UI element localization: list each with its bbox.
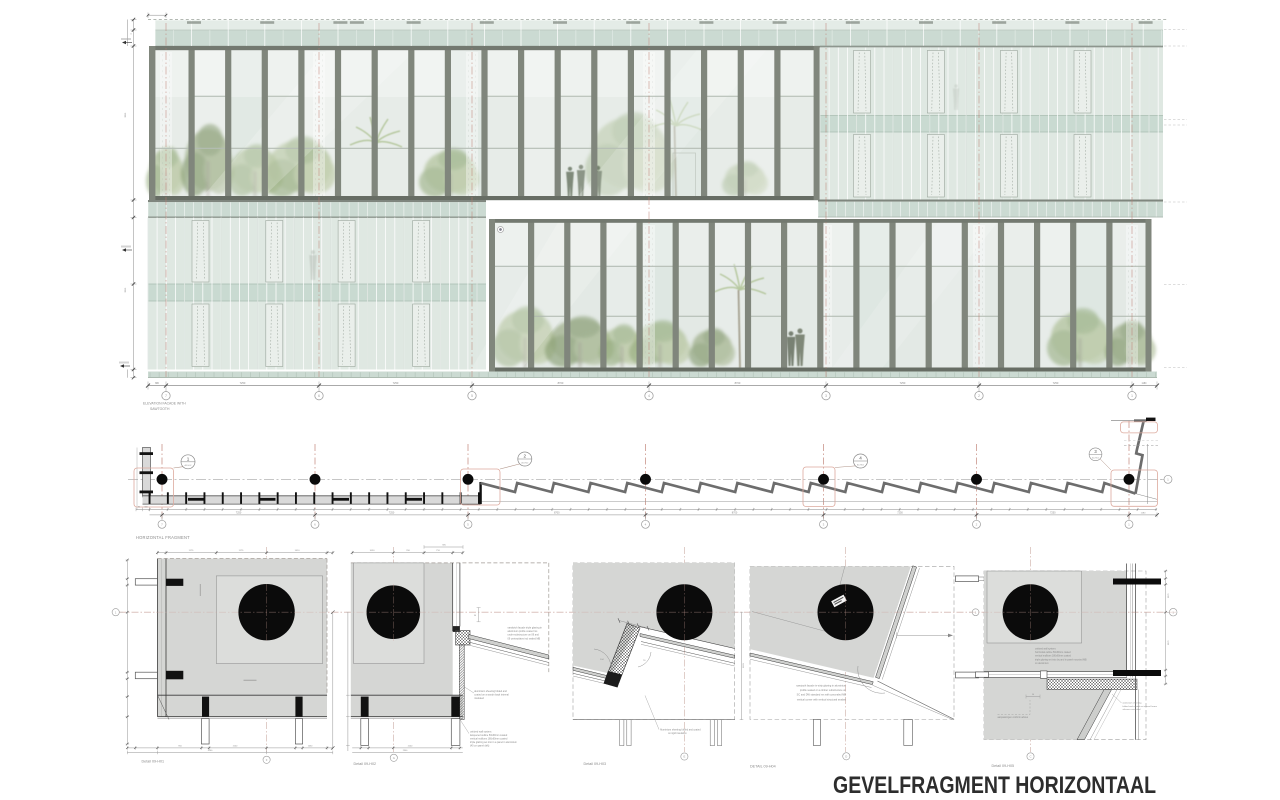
svg-text:Detail 09-H05: Detail 09-H05 — [992, 764, 1015, 768]
svg-text:vertical corner with vertical: vertical corner with vertical structural… — [797, 698, 846, 701]
svg-text:ELEVATION FACADE WITH: ELEVATION FACADE WITH — [143, 402, 186, 406]
svg-text:8700: 8700 — [554, 512, 560, 515]
svg-text:G: G — [393, 756, 395, 760]
svg-text:profile seated on a timber sub: profile seated on a timber substructure … — [800, 689, 847, 692]
svg-text:A5.H02: A5.H02 — [185, 464, 193, 467]
svg-text:1175: 1175 — [189, 550, 194, 552]
svg-text:1180: 1180 — [1141, 513, 1146, 515]
svg-text:Detail 09-H01: Detail 09-H01 — [142, 759, 165, 763]
svg-text:F: F — [266, 758, 268, 762]
svg-text:SAWTOOTH: SAWTOOTH — [150, 407, 170, 411]
svg-text:4: 4 — [859, 456, 862, 461]
svg-text:8700: 8700 — [735, 381, 741, 385]
svg-text:A5.H02: A5.H02 — [857, 463, 865, 466]
svg-text:(40 cm panel drift): (40 cm panel drift) — [470, 745, 489, 748]
svg-text:3850: 3850 — [125, 287, 127, 293]
svg-text:5: 5 — [471, 394, 473, 398]
svg-text:on rigid insulation: on rigid insulation — [668, 732, 687, 735]
svg-text:80: 80 — [138, 506, 140, 508]
svg-text:300: 300 — [144, 506, 147, 508]
svg-text:Aluminium sheeting folded and: Aluminium sheeting folded and coated — [660, 729, 701, 732]
svg-text:1175: 1175 — [239, 550, 244, 552]
svg-text:Detail 09-H02: Detail 09-H02 — [354, 762, 377, 766]
svg-text:7250: 7250 — [900, 381, 906, 385]
svg-text:7250: 7250 — [1053, 381, 1059, 385]
svg-text:7250: 7250 — [240, 381, 246, 385]
svg-text:1180: 1180 — [1142, 383, 1148, 385]
svg-text:insulated: insulated — [474, 697, 484, 700]
svg-text:SC and DW standard ms with con: SC and DW standard ms with concealed MB — [797, 694, 847, 697]
svg-text:7250: 7250 — [897, 512, 903, 515]
svg-text:3850: 3850 — [125, 112, 127, 118]
svg-text:folded and coated on internal: folded and coated on internal frame — [1123, 705, 1158, 708]
svg-text:1: 1 — [187, 456, 190, 461]
svg-text:GEVELFRAGMENT HORIZONTAAL: GEVELFRAGMENT HORIZONTAAL — [833, 772, 1156, 799]
svg-text:C: C — [1029, 755, 1031, 759]
svg-text:2: 2 — [524, 454, 527, 459]
svg-text:aluminium profile coated ms: aluminium profile coated ms — [508, 630, 539, 633]
svg-text:A5.H02: A5.H02 — [521, 461, 529, 464]
svg-text:aluminium sheeting: aluminium sheeting — [1123, 702, 1143, 705]
svg-text:coated on a woodn back interna: coated on a woodn back internal — [474, 694, 509, 697]
svg-text:2: 2 — [978, 394, 980, 398]
svg-text:90: 90 — [474, 615, 476, 617]
svg-text:DETAIL 09-H04: DETAIL 09-H04 — [750, 764, 776, 768]
svg-text:A5.H02: A5.H02 — [1092, 457, 1100, 460]
svg-text:sandwich facade triple glazing: sandwich facade triple glazing in — [508, 627, 543, 630]
svg-text:7250: 7250 — [236, 512, 242, 515]
svg-text:7250: 7250 — [393, 381, 399, 385]
svg-text:unitized wall system:: unitized wall system: — [1035, 648, 1056, 651]
svg-text:4: 4 — [648, 394, 650, 398]
svg-text:3: 3 — [825, 394, 827, 398]
svg-text:1: 1 — [1131, 394, 1133, 398]
svg-text:1030: 1030 — [370, 550, 376, 552]
svg-text:6: 6 — [318, 394, 320, 398]
svg-text:7250: 7250 — [389, 512, 395, 515]
svg-text:1410: 1410 — [295, 550, 301, 552]
svg-text:on aluminium: on aluminium — [1035, 663, 1049, 665]
svg-text:under substructure on 09 and: under substructure on 09 and — [508, 634, 540, 637]
svg-text:sawtooth facade in-strip glazi: sawtooth facade in-strip glazing in alum… — [796, 685, 846, 688]
svg-text:triple glazing set into dry an: triple glazing set into dry and in panel… — [1035, 658, 1087, 661]
svg-text:7: 7 — [165, 394, 167, 398]
svg-text:vertical mullions 180x60mm coa: vertical mullions 180x60mm coated — [1035, 655, 1072, 658]
svg-text:8700: 8700 — [558, 381, 564, 385]
svg-text:50: 50 — [1032, 694, 1034, 696]
svg-text:8700: 8700 — [732, 512, 738, 515]
svg-text:aluminium sheeting folded and: aluminium sheeting folded and — [474, 690, 507, 693]
svg-text:HORIZONTAL FRAGMENT: HORIZONTAL FRAGMENT — [136, 535, 190, 540]
svg-text:7250: 7250 — [1050, 512, 1056, 515]
svg-text:E: E — [683, 755, 685, 759]
svg-text:silicone concealed: silicone concealed — [1123, 709, 1142, 711]
svg-text:09 centreplates incl sealed MB: 09 centreplates incl sealed MB — [508, 637, 541, 640]
svg-text:aanpassingen conform advies: aanpassingen conform advies — [998, 716, 1029, 719]
svg-text:horizontal outline 50x60mm coa: horizontal outline 50x60mm coated — [1035, 651, 1071, 654]
svg-text:Detail 09-H03: Detail 09-H03 — [584, 762, 607, 766]
svg-text:D: D — [845, 755, 847, 759]
